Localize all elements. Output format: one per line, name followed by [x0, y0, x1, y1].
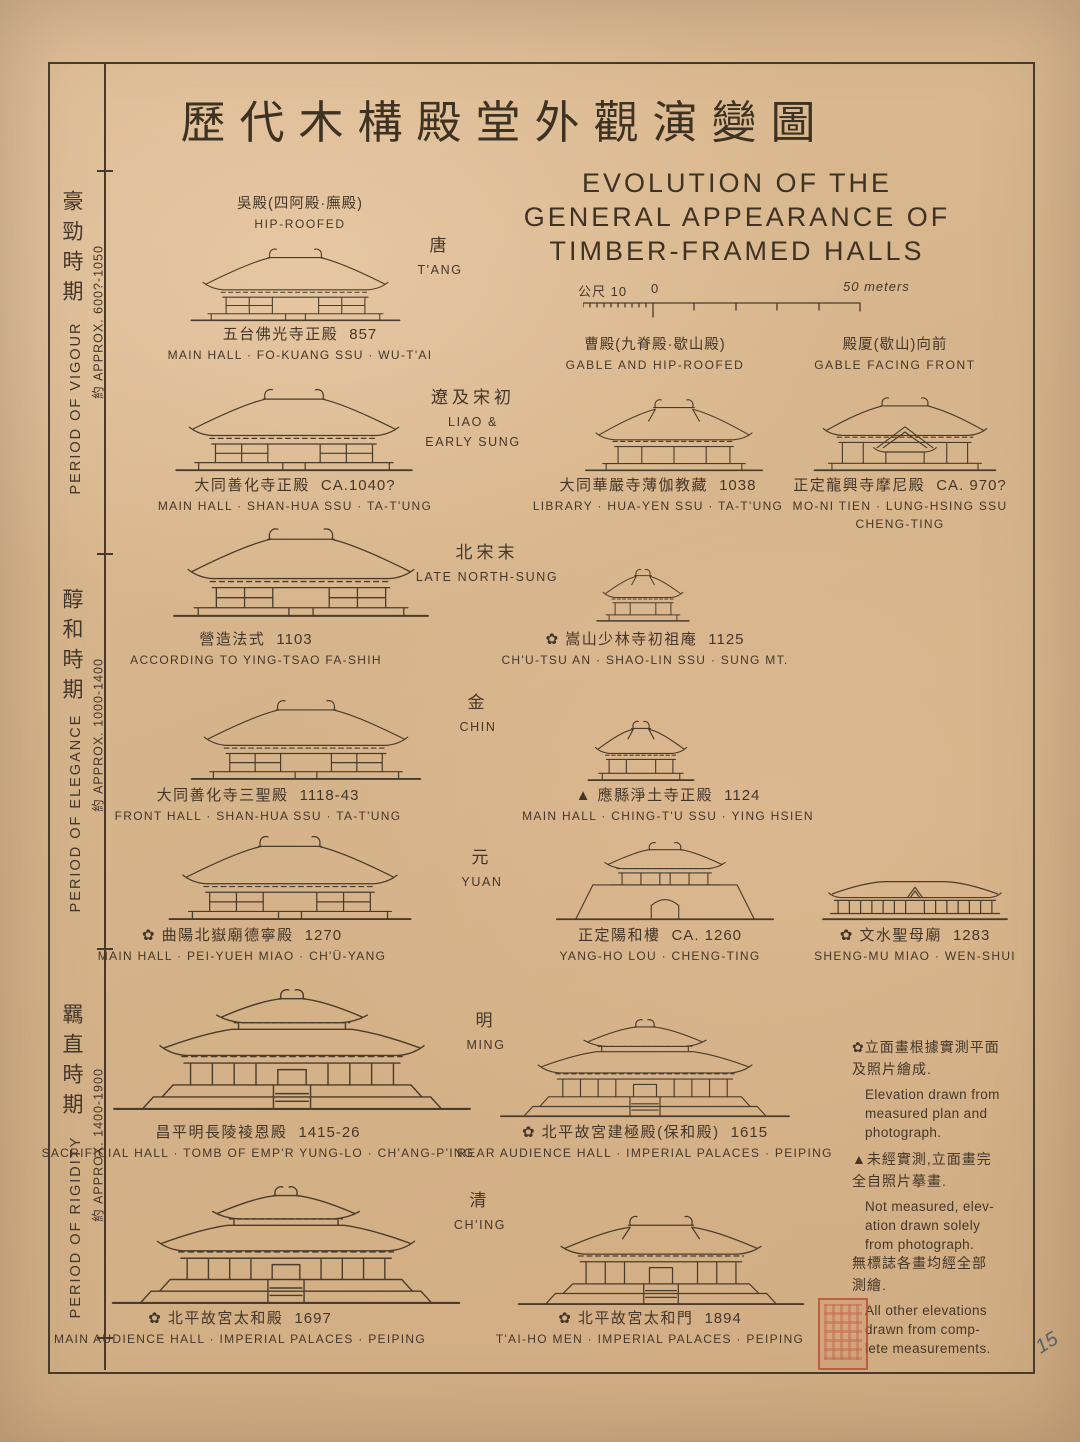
- caption-yangho: 正定陽和樓CA. 1260 YANG-HO LOU · CHENG-TING: [560, 924, 761, 963]
- note-en-line: drawn from comp-: [865, 1320, 1032, 1339]
- drawing-taiho-tien: [98, 1186, 474, 1305]
- caption-huayen: 大同華嚴寺薄伽教藏1038 LIBRARY · HUA-YEN SSU · TA…: [533, 474, 783, 513]
- building-en: MAIN HALL · SHAN-HUA SSU · TA-T'UNG: [158, 499, 432, 513]
- drawing-huayen-library: [560, 394, 788, 472]
- building-date: CA. 1260: [671, 927, 742, 944]
- roof-type-gable-hip: 曹殿(九脊殿·歇山殿) GABLE AND HIP-ROOFED: [566, 333, 745, 372]
- building-en: FRONT HALL · SHAN-HUA SSU · TA-T'UNG: [115, 809, 402, 823]
- era-en: CHIN: [460, 717, 497, 737]
- drawing-yangho-lou: [538, 842, 792, 921]
- building-en: CHENG-TING: [793, 517, 1008, 531]
- drawing-chutsu-an: [594, 566, 692, 623]
- building-zh: ▲ 應縣淨土寺正殿: [576, 787, 714, 804]
- building-zh: ✿ 北平故宮太和門: [558, 1310, 693, 1327]
- building-date: 1118-43: [300, 787, 360, 804]
- era-chin: 金 CHIN: [460, 688, 497, 737]
- drawing-chingtu-main-hall: [585, 718, 697, 782]
- building-date: CA. 970?: [936, 477, 1007, 494]
- note-measured-plan: ✿立面畫根據實測平面 及照片繪成. Elevation drawn from m…: [852, 1036, 1032, 1142]
- building-zh: 大同華嚴寺薄伽教藏: [560, 477, 709, 494]
- era-zh: 唐: [417, 231, 462, 256]
- building-date: 1415-26: [298, 1124, 360, 1141]
- building-en: ACCORDING TO YING-TSAO FA-SHIH: [130, 653, 382, 667]
- note-en-line: photograph.: [865, 1123, 1032, 1142]
- red-seal-stamp: [818, 1298, 868, 1370]
- period-label-en: PERIOD OF ELEGANCE: [68, 714, 84, 913]
- era-zh: 元: [461, 843, 502, 868]
- building-zh: 昌平明長陵祾恩殿: [155, 1124, 287, 1141]
- scale-right-label: 50 meters: [843, 279, 910, 294]
- era-en: T'ANG: [417, 260, 462, 280]
- period-label-zh: 醇和時期: [56, 588, 86, 708]
- scale-zero-label: 0: [651, 281, 659, 296]
- building-zh: 正定陽和樓: [578, 927, 661, 944]
- caption-moni-tien: 正定龍興寺摩尼殿CA. 970? MO-NI TIEN · LUNG-HSING…: [793, 474, 1008, 531]
- building-zh: 五台佛光寺正殿: [223, 326, 339, 343]
- building-zh: ✿ 北平故宮太和殿: [148, 1310, 283, 1327]
- note-en-line: lete measurements.: [865, 1339, 1032, 1358]
- note-zh-line: ▲未經實測,立面畫完: [852, 1148, 1032, 1170]
- roof-type-en: HIP-ROOFED: [237, 217, 363, 231]
- building-date: 1038: [719, 477, 756, 494]
- era-yuan: 元 YUAN: [461, 843, 502, 892]
- roof-type-zh: 曹殿(九脊殿·歇山殿): [566, 333, 745, 354]
- drawing-shengmu-miao: [820, 876, 1010, 921]
- caption-taiho-tien: ✿ 北平故宮太和殿1697 MAIN AUDIENCE HALL · IMPER…: [54, 1307, 426, 1346]
- building-en: MO-NI TIEN · LUNG-HSING SSU: [793, 499, 1008, 513]
- era-tang: 唐 T'ANG: [417, 231, 462, 280]
- building-en: MAIN HALL · CHING-T'U SSU · YING HSIEN: [522, 809, 814, 823]
- building-en: SHENG-MU MIAO · WEN-SHUI: [814, 949, 1016, 963]
- chart-title-zh: 歷代木構殿堂外觀演變圖: [180, 86, 829, 151]
- era-en: LIAO & EARLY SUNG: [425, 412, 521, 452]
- drawing-peiyueh-miao-hall: [162, 833, 418, 921]
- building-en: MAIN AUDIENCE HALL · IMPERIAL PALACES · …: [54, 1332, 426, 1346]
- timeline-tick: [97, 170, 113, 172]
- building-en: T'AI-HO MEN · IMPERIAL PALACES · PEIPING: [496, 1332, 804, 1346]
- building-zh: ✿ 嵩山少林寺初祖庵: [545, 631, 697, 648]
- era-zh: 北宋末: [416, 538, 558, 563]
- building-date: 1270: [305, 927, 342, 944]
- note-en-line: measured plan and: [865, 1104, 1032, 1123]
- building-date: 1615: [731, 1124, 768, 1141]
- note-en-line: Not measured, elev-: [865, 1197, 1032, 1216]
- building-date: 1697: [294, 1310, 331, 1327]
- building-date: 1124: [724, 787, 760, 804]
- building-date: 1283: [953, 927, 990, 944]
- caption-fokuang: 五台佛光寺正殿857 MAIN HALL · FO-KUANG SSU · WU…: [168, 323, 433, 362]
- building-zh: ✿ 北平故宮建極殿(保和殿): [522, 1124, 720, 1141]
- timeline-tick: [97, 553, 113, 555]
- caption-chingtu: ▲ 應縣淨土寺正殿1124 MAIN HALL · CHING-T'U SSU …: [522, 784, 814, 823]
- note-en-line: All other elevations: [865, 1301, 1032, 1320]
- drawing-shanhua-main-hall: [158, 386, 430, 472]
- caption-paoho: ✿ 北平故宮建極殿(保和殿)1615 REAR AUDIENCE HALL · …: [457, 1121, 832, 1160]
- drawing-yingtsao-fashih-hall: [170, 520, 432, 623]
- building-en: REAR AUDIENCE HALL · IMPERIAL PALACES · …: [457, 1146, 832, 1160]
- seal-glyphs: [824, 1304, 862, 1360]
- chart-title-en: EVOLUTION OF THE GENERAL APPEARANCE OF T…: [524, 166, 951, 268]
- period-label-zh: 羈直時期: [56, 1003, 86, 1123]
- building-date: 1125: [708, 631, 744, 648]
- note-not-measured: ▲未經實測,立面畫完 全自照片摹畫. Not measured, elev- a…: [852, 1148, 1032, 1254]
- note-en-line: ation drawn solely: [865, 1216, 1032, 1235]
- drawing-moni-tien: [806, 392, 1004, 472]
- building-date: 1894: [704, 1310, 741, 1327]
- title-line: EVOLUTION OF THE: [524, 166, 951, 200]
- caption-yingtsao: 營造法式1103 ACCORDING TO YING-TSAO FA-SHIH: [130, 628, 382, 667]
- drawing-sheet: 歷代木構殿堂外觀演變圖 EVOLUTION OF THE GENERAL APP…: [0, 0, 1080, 1442]
- building-zh: 正定龍興寺摩尼殿: [793, 477, 925, 494]
- caption-shanhua-front: 大同善化寺三聖殿1118-43 FRONT HALL · SHAN-HUA SS…: [115, 784, 402, 823]
- building-zh: 大同善化寺正殿: [194, 477, 310, 494]
- drawing-fokuang-main-hall: [188, 246, 403, 322]
- note-en-line: Elevation drawn from: [865, 1085, 1032, 1104]
- building-en: LIBRARY · HUA-YEN SSU · TA-T'UNG: [533, 499, 783, 513]
- title-line: GENERAL APPEARANCE OF: [524, 200, 951, 234]
- caption-shanhua-main: 大同善化寺正殿CA.1040? MAIN HALL · SHAN-HUA SSU…: [158, 474, 432, 513]
- period-label-en: PERIOD OF RIGIDITY: [68, 1136, 84, 1319]
- building-zh: ✿ 曲陽北嶽廟德寧殿: [142, 927, 294, 944]
- note-zh-line: 無標誌各畫均經全部: [852, 1252, 1032, 1274]
- building-zh: 大同善化寺三聖殿: [157, 787, 289, 804]
- caption-peiyueh: ✿ 曲陽北嶽廟德寧殿1270 MAIN HALL · PEI-YUEH MIAO…: [98, 924, 386, 963]
- title-line: TIMBER-FRAMED HALLS: [524, 234, 951, 268]
- roof-type-en: GABLE AND HIP-ROOFED: [566, 358, 745, 372]
- roof-type-hip: 吳殿(四阿殿·廡殿) HIP-ROOFED: [237, 192, 363, 231]
- note-all-other: 無標誌各畫均經全部 測繪. All other elevations drawn…: [852, 1252, 1032, 1358]
- caption-shengmu: ✿ 文水聖母廟1283 SHENG-MU MIAO · WEN-SHUI: [814, 924, 1016, 963]
- period-approx: 約 APPROX. 1000-1400: [88, 658, 107, 812]
- drawing-changling-sacrificial-hall: [112, 983, 472, 1117]
- caption-taiho-men: ✿ 北平故宮太和門1894 T'AI-HO MEN · IMPERIAL PAL…: [496, 1307, 804, 1346]
- drawing-taiho-men: [515, 1208, 807, 1306]
- scale-bar-ruler: [583, 297, 863, 319]
- building-zh: 營造法式: [199, 631, 265, 648]
- roof-type-gable-front: 殿厦(歇山)向前 GABLE FACING FRONT: [814, 333, 976, 372]
- drawing-paoho-tien: [492, 1019, 798, 1118]
- building-date: 857: [349, 326, 377, 343]
- building-date: 1103: [276, 631, 312, 648]
- building-zh: ✿ 文水聖母廟: [840, 927, 942, 944]
- caption-chutsu: ✿ 嵩山少林寺初祖庵1125 CH'U-TSU AN · SHAO-LIN SS…: [501, 628, 788, 667]
- roof-type-zh: 吳殿(四阿殿·廡殿): [237, 192, 363, 213]
- era-liao-early-sung: 遼及宋初 LIAO & EARLY SUNG: [425, 383, 521, 452]
- era-en: LATE NORTH-SUNG: [416, 567, 558, 587]
- note-zh-line: 全自照片摹畫.: [852, 1170, 1032, 1192]
- building-en: YANG-HO LOU · CHENG-TING: [560, 949, 761, 963]
- note-zh-line: ✿立面畫根據實測平面: [852, 1036, 1032, 1058]
- roof-type-en: GABLE FACING FRONT: [814, 358, 976, 372]
- era-late-north-sung: 北宋末 LATE NORTH-SUNG: [416, 538, 558, 587]
- building-en: SACRIFICIAL HALL · TOMB OF EMP'R YUNG-LO…: [42, 1146, 475, 1160]
- era-zh: 遼及宋初: [425, 383, 521, 408]
- note-zh-line: 及照片繪成.: [852, 1058, 1032, 1080]
- building-en: MAIN HALL · FO-KUANG SSU · WU-T'AI: [168, 348, 433, 362]
- period-label-en: PERIOD OF VIGOUR: [68, 322, 84, 495]
- building-date: CA.1040?: [321, 477, 396, 494]
- era-en: YUAN: [461, 872, 502, 892]
- era-zh: 金: [460, 688, 497, 713]
- period-label-zh: 豪勁時期: [56, 190, 86, 310]
- period-approx: 約 APPROX. 600?-1050: [88, 245, 107, 399]
- roof-type-zh: 殿厦(歇山)向前: [814, 333, 976, 354]
- page-number: 15: [1032, 1328, 1063, 1359]
- note-zh-line: 測繪.: [852, 1274, 1032, 1296]
- drawing-shanhua-front-hall: [188, 696, 424, 782]
- caption-changling: 昌平明長陵祾恩殿1415-26 SACRIFICIAL HALL · TOMB …: [42, 1121, 475, 1160]
- building-en: CH'U-TSU AN · SHAO-LIN SSU · SUNG MT.: [501, 653, 788, 667]
- building-en: MAIN HALL · PEI-YUEH MIAO · CH'Ü-YANG: [98, 949, 386, 963]
